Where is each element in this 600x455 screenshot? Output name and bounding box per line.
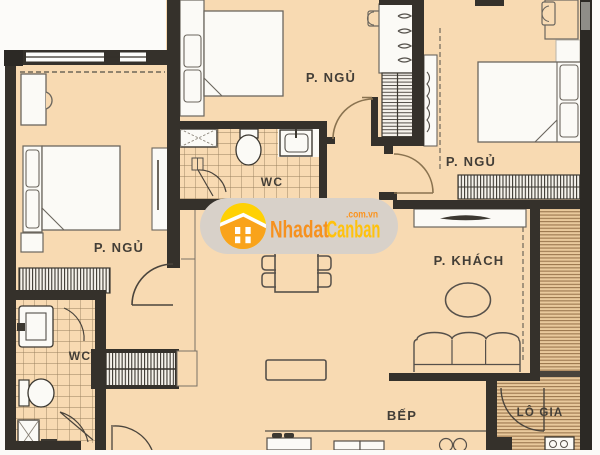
svg-text:P. NGỦ: P. NGỦ (306, 70, 356, 85)
svg-text:BẾP: BẾP (387, 408, 417, 423)
svg-text:P. NGỦ: P. NGỦ (446, 154, 496, 169)
svg-text:Canban: Canban (327, 217, 381, 244)
svg-text:P. NGỦ: P. NGỦ (94, 240, 144, 255)
svg-text:WC: WC (261, 175, 283, 189)
svg-text:WC: WC (69, 349, 91, 363)
svg-text:.com.vn: .com.vn (346, 209, 378, 220)
svg-text:Nhadat: Nhadat (270, 216, 329, 244)
svg-text:P. KHÁCH: P. KHÁCH (434, 253, 505, 268)
svg-text:LÔ GIA: LÔ GIA (517, 406, 564, 419)
